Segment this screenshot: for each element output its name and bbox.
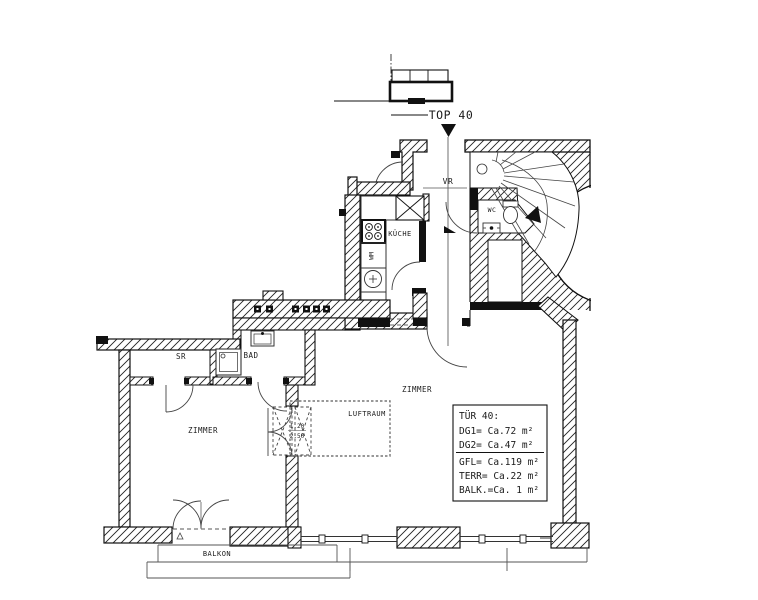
room-label-zimmer-main: ZIMMER xyxy=(402,385,432,394)
toilet-icon xyxy=(504,207,518,224)
floor-plan-drawing: TOP 40 xyxy=(0,0,758,600)
room-label-zimmer-left: ZIMMER xyxy=(188,426,218,435)
room-label-wc: WC xyxy=(488,206,497,214)
stove-icon xyxy=(362,220,385,243)
floor-plan: TOP 40 xyxy=(0,0,758,600)
room-label-bad: BAD xyxy=(243,351,258,360)
summary-dg2: DG2= Ca.47 m² xyxy=(459,440,533,451)
summary-dg1: DG1= Ca.72 m² xyxy=(459,426,533,437)
room-label-balkon: BALKON xyxy=(203,550,231,558)
right-exterior-wall xyxy=(563,320,576,523)
summary-terr: TERR= Ca.22 m² xyxy=(459,471,539,482)
area-summary-box: TÜR 40: DG1= Ca.72 m² DG2= Ca.47 m² GFL=… xyxy=(453,405,547,501)
room-label-luftraum: LUFTRAUM xyxy=(348,410,386,418)
left-exterior-wall xyxy=(119,350,130,527)
ladder-dim-top: 1.20 xyxy=(290,423,305,430)
ladder-dim-bottom: 2.50 xyxy=(290,433,305,440)
summary-title: TÜR 40: xyxy=(459,411,499,422)
room-label-kueche: KÜCHE xyxy=(388,229,412,238)
summary-gfl: GFL= Ca.119 m² xyxy=(459,457,539,468)
room-label-sr: SR xyxy=(176,352,186,361)
summary-balk: BALK.=Ca. 1 m² xyxy=(459,485,539,496)
washing-machine-label: WM xyxy=(368,252,376,260)
unit-title: TOP 40 xyxy=(429,108,474,122)
room-label-vr: VR xyxy=(443,177,454,186)
